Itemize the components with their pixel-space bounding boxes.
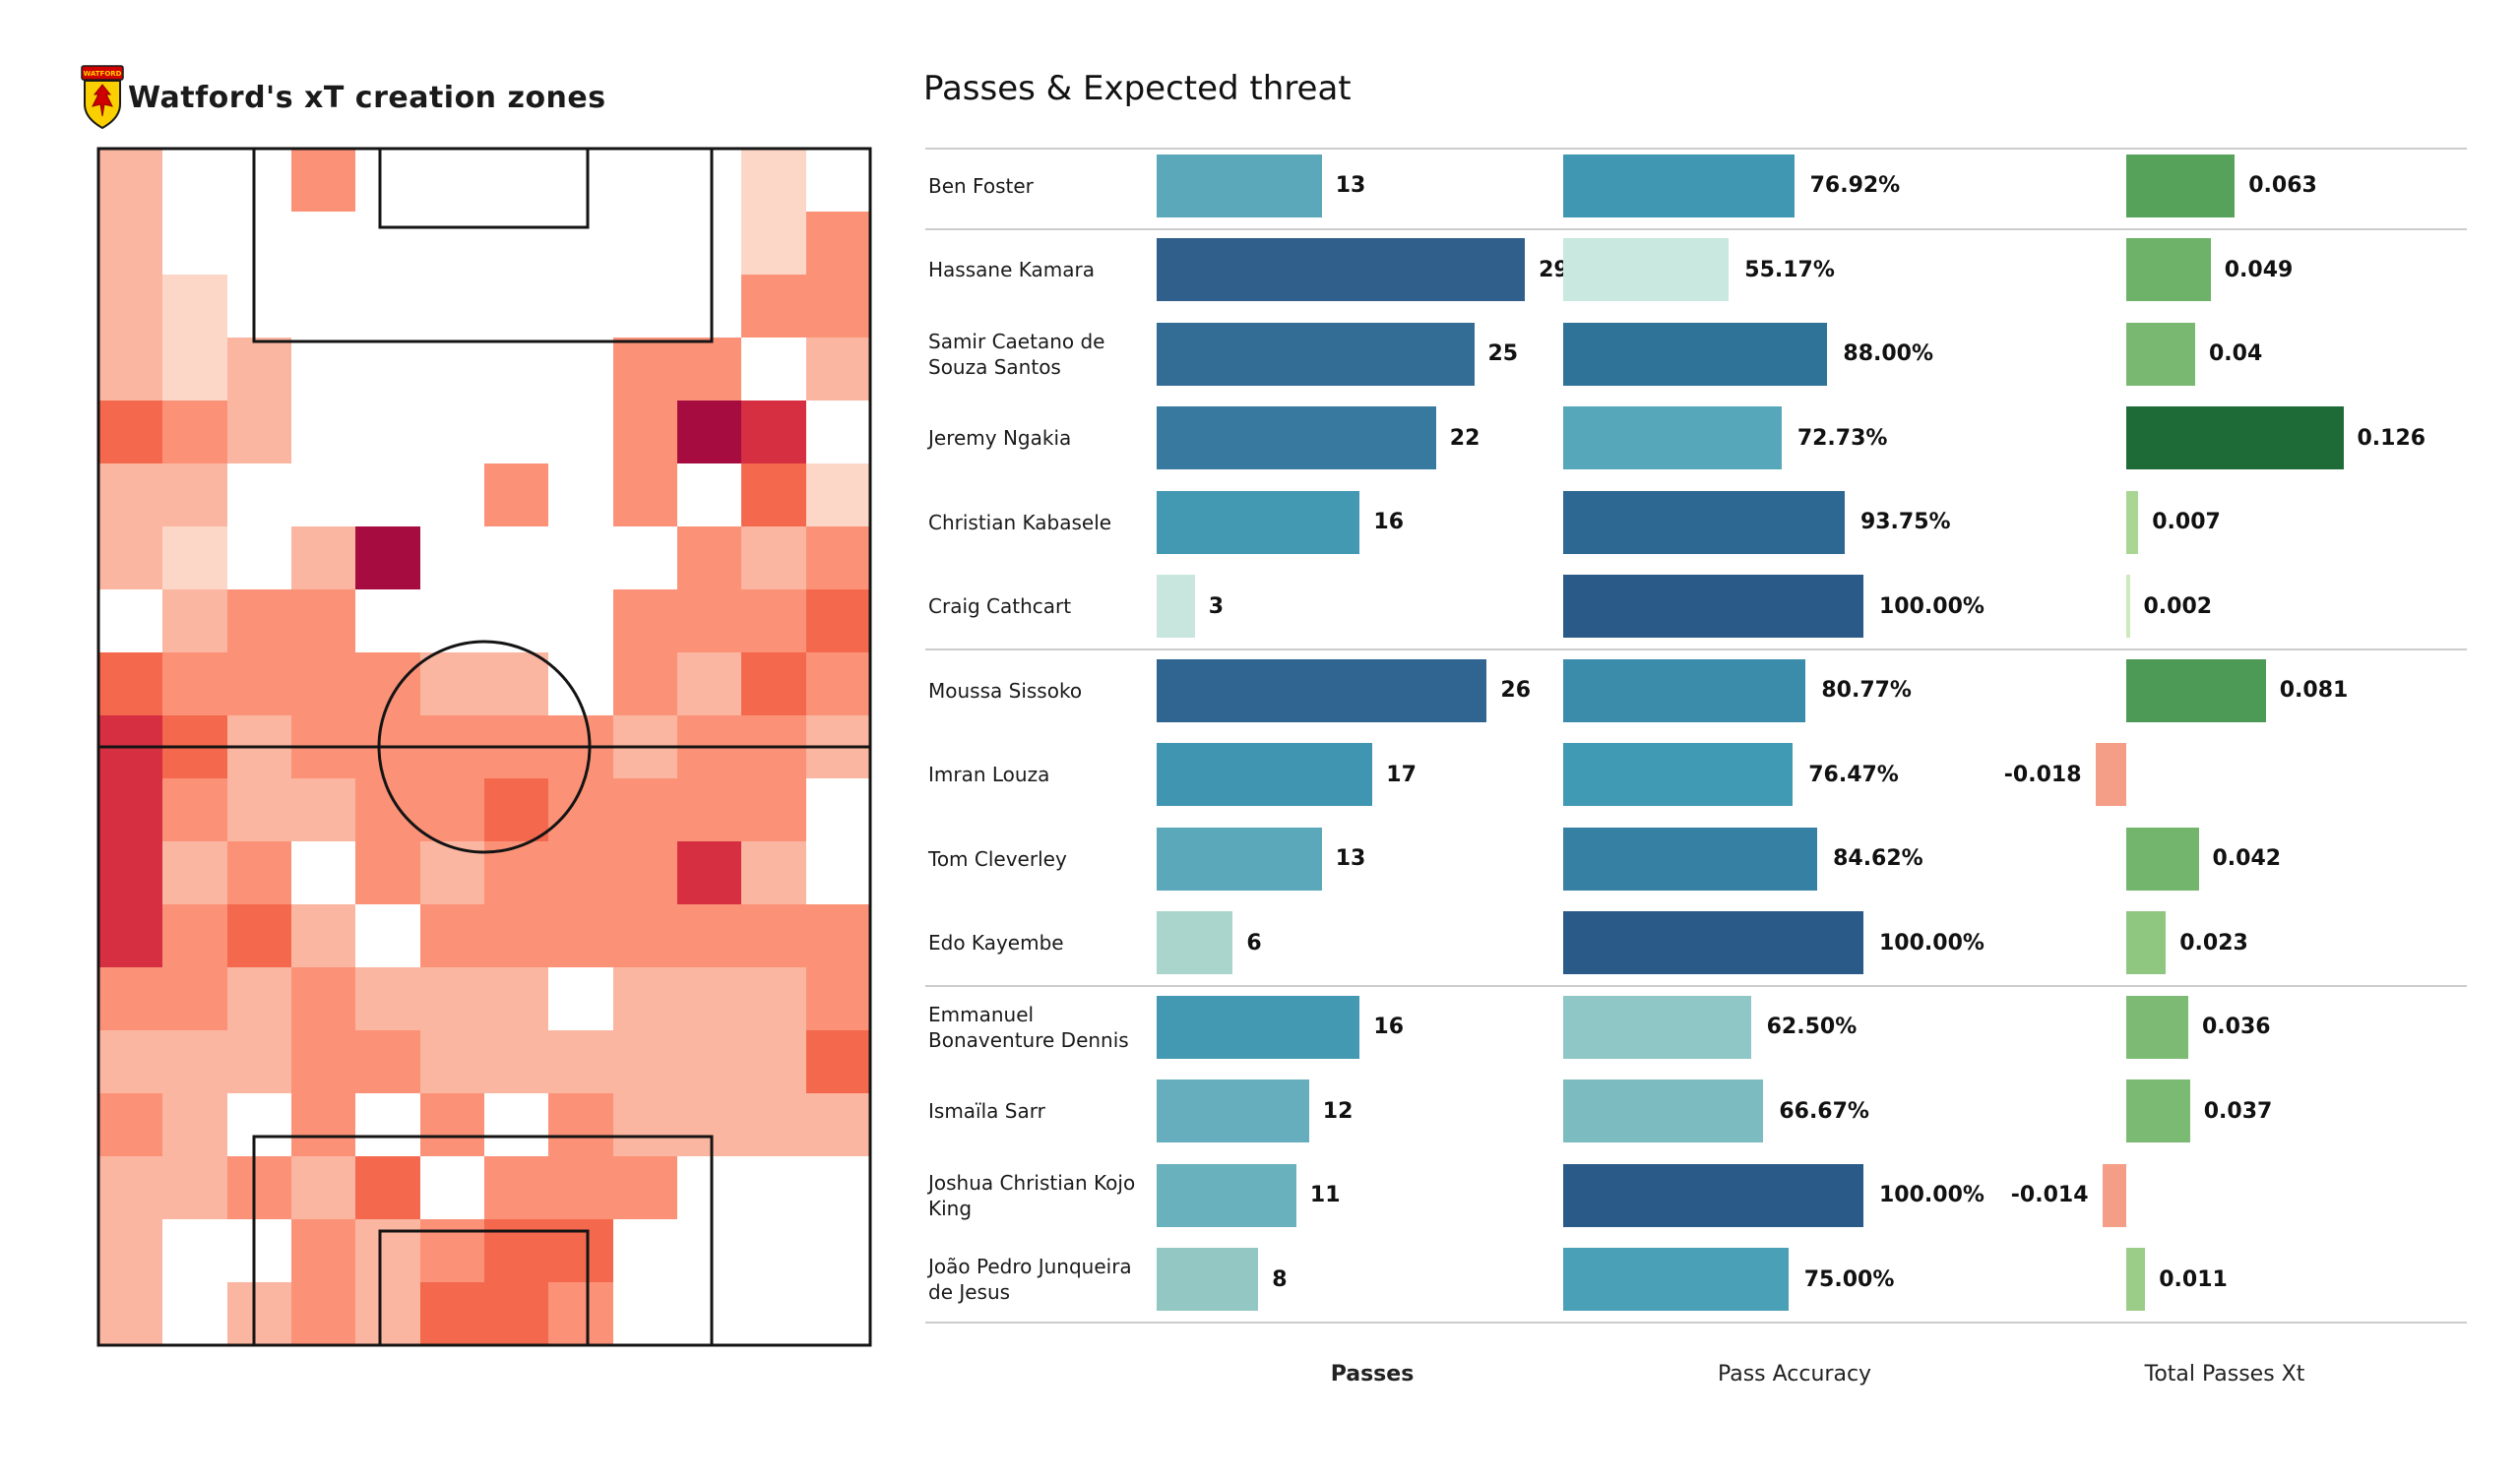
accuracy-bar [1563, 154, 1795, 217]
player-row-5: Christian Kabasele1693.75%0.007 [0, 480, 2520, 565]
chart-panel-title: Passes & Expected threat [923, 69, 1352, 108]
passes-value: 11 [1310, 1153, 1341, 1238]
passes-bar [1157, 575, 1195, 638]
player-name: Tom Cleverley [928, 817, 1149, 901]
passes-bar [1157, 743, 1372, 806]
passes-bar [1157, 996, 1359, 1059]
accuracy-value: 72.73% [1797, 397, 1888, 481]
passes-bar [1157, 659, 1486, 722]
accuracy-value: 75.00% [1804, 1238, 1895, 1323]
player-row-9: Tom Cleverley1384.62%0.042 [0, 817, 2520, 901]
xt-bar [2096, 743, 2127, 806]
xt-value: -0.018 [1859, 733, 2082, 818]
player-row-1: Ben Foster1376.92%0.063 [0, 144, 2520, 228]
passes-value: 16 [1373, 480, 1404, 565]
accuracy-bar [1563, 911, 1863, 974]
passes-bar [1157, 491, 1359, 554]
accuracy-value: 93.75% [1860, 480, 1951, 565]
xt-bar [2126, 154, 2235, 217]
pitch-panel-title: Watford's xT creation zones [128, 81, 606, 115]
xt-bar [2126, 1079, 2190, 1142]
passes-value: 8 [1272, 1238, 1287, 1323]
passes-bar [1157, 1248, 1258, 1311]
xt-value: 0.126 [2358, 397, 2426, 481]
xt-bar [2126, 996, 2188, 1059]
passes-bar [1157, 238, 1525, 301]
player-row-8: Imran Louza1776.47%-0.018 [0, 733, 2520, 818]
accuracy-bar [1563, 659, 1805, 722]
passes-bar [1157, 406, 1436, 469]
xt-value: 0.023 [2179, 901, 2248, 986]
player-row-12: Ismaïla Sarr1266.67%0.037 [0, 1070, 2520, 1154]
accuracy-bar [1563, 996, 1751, 1059]
player-name: Moussa Sissoko [928, 648, 1149, 733]
player-row-2: Hassane Kamara2955.17%0.049 [0, 228, 2520, 313]
xt-value: 0.036 [2202, 985, 2271, 1070]
player-name: Edo Kayembe [928, 901, 1149, 986]
accuracy-value: 55.17% [1744, 228, 1835, 313]
accuracy-value: 80.77% [1821, 648, 1912, 733]
accuracy-value: 62.50% [1767, 985, 1858, 1070]
passes-bar [1157, 1164, 1296, 1227]
accuracy-bar [1563, 491, 1845, 554]
group-separator-1 [925, 228, 2467, 230]
group-separator-3 [925, 985, 2467, 987]
passes-value: 3 [1209, 565, 1224, 649]
player-name: Jeremy Ngakia [928, 397, 1149, 481]
accuracy-value: 66.67% [1779, 1070, 1869, 1154]
accuracy-bar [1563, 743, 1793, 806]
passes-bar [1157, 1079, 1309, 1142]
player-row-10: Edo Kayembe6100.00%0.023 [0, 901, 2520, 986]
passes-value: 6 [1246, 901, 1261, 986]
accuracy-bar [1563, 1248, 1789, 1311]
accuracy-value: 88.00% [1843, 312, 1933, 397]
xt-value: 0.037 [2204, 1070, 2273, 1154]
passes-bar [1157, 154, 1322, 217]
xt-value: 0.063 [2248, 144, 2317, 228]
xt-bar [2126, 828, 2199, 891]
xt-value: -0.014 [1866, 1153, 2089, 1238]
svg-text:WATFORD: WATFORD [84, 70, 122, 78]
xt-value: 0.049 [2225, 228, 2294, 313]
accuracy-bar [1563, 828, 1817, 891]
player-name: Emmanuel Bonaventure Dennis [928, 985, 1149, 1070]
xt-bar [2126, 1248, 2145, 1311]
passes-value: 13 [1336, 817, 1366, 901]
accuracy-bar [1563, 575, 1863, 638]
xt-axis-label: Total Passes Xt [2077, 1362, 2372, 1395]
player-name: Imran Louza [928, 733, 1149, 818]
xt-value: 0.011 [2159, 1238, 2228, 1323]
xt-bar [2126, 491, 2138, 554]
xt-bar [2103, 1164, 2127, 1227]
player-name: Samir Caetano de Souza Santos [928, 312, 1149, 397]
xt-value: 0.007 [2152, 480, 2221, 565]
watford-xt-dashboard: { "pitch_panel": { "title": "Watford's x… [0, 0, 2520, 1480]
passes-value: 25 [1488, 312, 1519, 397]
group-separator-2 [925, 648, 2467, 650]
player-row-3: Samir Caetano de Souza Santos2588.00%0.0… [0, 312, 2520, 397]
watford-crest-logo: WATFORD [81, 65, 124, 130]
passes-bar [1157, 828, 1322, 891]
passes-value: 26 [1500, 648, 1531, 733]
passes-value: 12 [1323, 1070, 1354, 1154]
xt-bar [2126, 911, 2166, 974]
passes-axis-label: Passes [1274, 1362, 1471, 1395]
accuracy-value: 100.00% [1879, 565, 1984, 649]
xt-value: 0.04 [2209, 312, 2262, 397]
accuracy-value: 100.00% [1879, 901, 1984, 986]
passes-bar [1157, 323, 1475, 386]
player-row-4: Jeremy Ngakia2272.73%0.126 [0, 397, 2520, 481]
player-name: Craig Cathcart [928, 565, 1149, 649]
accuracy-axis-label: Pass Accuracy [1647, 1362, 1942, 1395]
accuracy-bar [1563, 323, 1827, 386]
passes-value: 17 [1386, 733, 1417, 818]
player-row-13: Joshua Christian Kojo King11100.00%-0.01… [0, 1153, 2520, 1238]
xt-value: 0.042 [2213, 817, 2282, 901]
xt-bar [2126, 659, 2266, 722]
player-row-14: João Pedro Junqueira de Jesus875.00%0.01… [0, 1238, 2520, 1323]
player-row-6: Craig Cathcart3100.00%0.002 [0, 565, 2520, 649]
player-name: Hassane Kamara [928, 228, 1149, 313]
player-name: Joshua Christian Kojo King [928, 1153, 1149, 1238]
xt-bar [2126, 406, 2344, 469]
player-row-11: Emmanuel Bonaventure Dennis1662.50%0.036 [0, 985, 2520, 1070]
passes-value: 16 [1373, 985, 1404, 1070]
player-name: Ismaïla Sarr [928, 1070, 1149, 1154]
xt-bar [2126, 575, 2130, 638]
accuracy-bar [1563, 1164, 1863, 1227]
player-row-7: Moussa Sissoko2680.77%0.081 [0, 648, 2520, 733]
xt-bar [2126, 238, 2211, 301]
header-separator [925, 148, 2467, 150]
passes-value: 22 [1450, 397, 1480, 481]
accuracy-value: 84.62% [1833, 817, 1923, 901]
group-separator-4 [925, 1322, 2467, 1324]
accuracy-bar [1563, 238, 1729, 301]
passes-value: 13 [1336, 144, 1366, 228]
player-name: Christian Kabasele [928, 480, 1149, 565]
xt-value: 0.002 [2144, 565, 2213, 649]
accuracy-value: 76.92% [1810, 144, 1901, 228]
xt-value: 0.081 [2280, 648, 2349, 733]
accuracy-bar [1563, 406, 1782, 469]
passes-bar [1157, 911, 1232, 974]
accuracy-bar [1563, 1079, 1763, 1142]
player-name: Ben Foster [928, 144, 1149, 228]
xt-bar [2126, 323, 2195, 386]
player-name: João Pedro Junqueira de Jesus [928, 1238, 1149, 1323]
